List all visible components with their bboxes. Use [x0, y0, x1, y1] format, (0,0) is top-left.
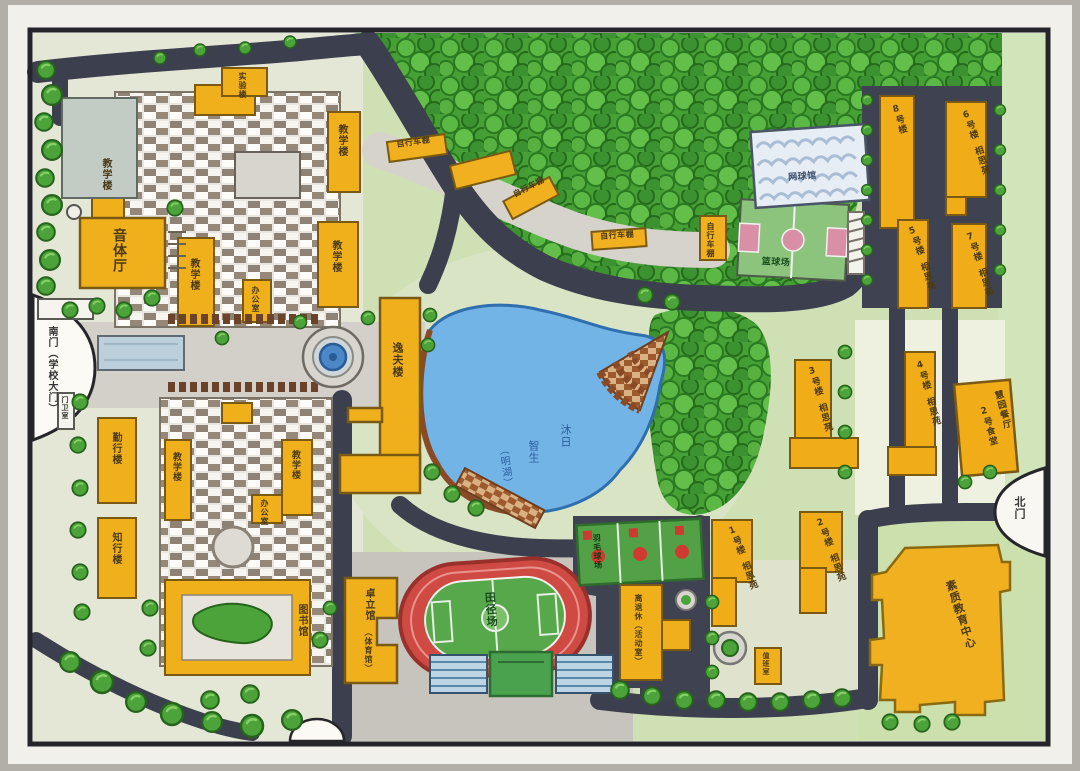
label-library: 图书馆: [296, 604, 306, 637]
activity-annex: [662, 620, 690, 650]
reflecting-pool: [98, 336, 184, 370]
grandstand: [490, 652, 552, 696]
label-south-gate: 南门（学校大门）: [46, 326, 56, 414]
label-music-sports-hall: 音体厅: [112, 228, 126, 273]
label-teaching-south: 教学楼: [188, 258, 198, 291]
tennis-hall: [750, 124, 869, 208]
label-activity: 离退休（活动室）: [634, 594, 642, 666]
campus-map-photo: 音体厅 教学楼 教学楼 教学楼 教学楼 实验楼 办公室 勤行楼 知行楼 教学楼 …: [0, 0, 1080, 771]
label-lake-col-1: 沐日: [560, 424, 571, 448]
label-zhixing: 知行楼: [110, 532, 120, 565]
label-teaching-sw: 教学楼: [171, 452, 180, 482]
fountain-plaza: [303, 327, 363, 387]
label-north-gate: 北门: [1014, 496, 1025, 520]
label-office-south: 办公室: [260, 499, 268, 526]
label-teaching-southeast: 教学楼: [330, 240, 340, 273]
label-gymnasium: 卓立馆（体育馆）: [363, 588, 373, 673]
label-lab-annex: 实验楼: [238, 72, 246, 99]
label-guard-room: 门卫室: [61, 396, 68, 420]
label-badminton: 羽毛球场: [592, 534, 602, 570]
label-yifu: 逸夫楼: [392, 342, 403, 378]
quality-education-center: [870, 545, 1010, 715]
bleachers: [430, 652, 613, 696]
label-teaching-east: 教学楼: [336, 124, 346, 157]
label-basketball: 篮球场: [762, 258, 791, 268]
label-track: 田径场: [484, 591, 497, 628]
label-teaching-se: 教学楼: [290, 450, 299, 480]
basketball-court: [737, 199, 849, 281]
label-office-annex: 办公室: [251, 286, 259, 313]
label-bike-shed-4: 自行车棚: [706, 222, 714, 258]
quad-north-cap: [222, 403, 252, 423]
label-duty: 值班室: [762, 652, 769, 676]
campus-map-drawing: [0, 0, 1080, 771]
label-lake-col-2: 智生: [528, 440, 539, 464]
label-teaching-west: 教学楼: [100, 158, 110, 191]
label-qinxing: 勤行楼: [110, 432, 120, 465]
